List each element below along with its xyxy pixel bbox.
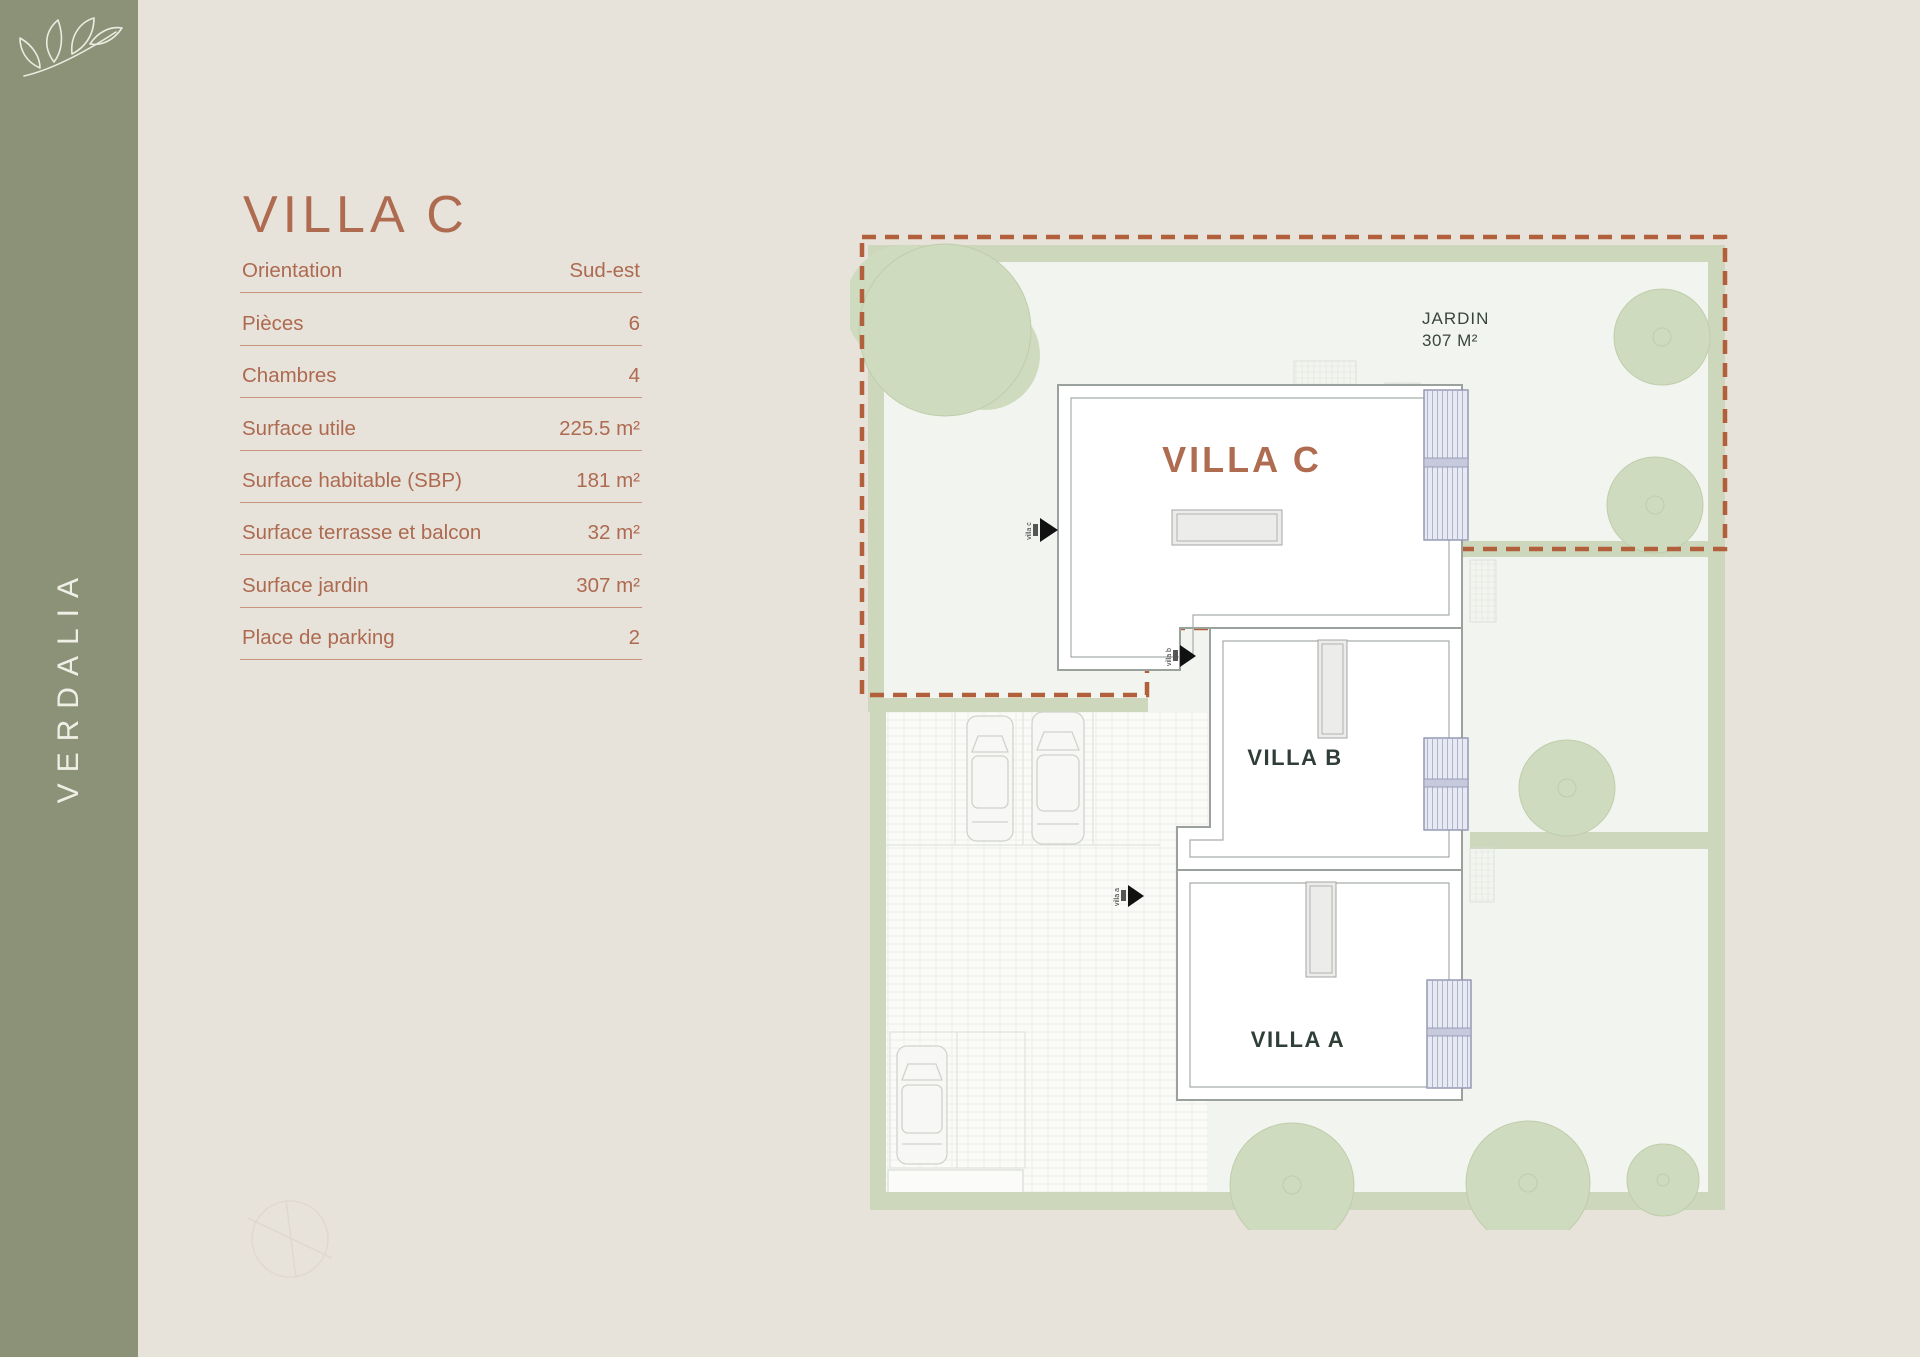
tree [1614,289,1710,385]
spec-row: Surface terrasse et balcon32 m² [240,503,642,555]
brand-name-vertical: VERDALIA [0,555,138,815]
car [967,716,1013,841]
jardin-area-label: 307 M² [1422,331,1478,350]
sidebar: VERDALIA [0,0,138,1357]
spec-value: 181 m² [576,469,640,493]
villa-b-east-windows [1424,738,1468,830]
villa-a-east-windows [1427,980,1471,1088]
compass-icon [240,1192,340,1292]
spec-label: Chambres [242,364,337,388]
spec-label: Orientation [242,259,342,283]
villa-c-plan-label: VILLA C [1162,439,1322,480]
spec-row: Surface utile225.5 m² [240,398,642,450]
car [1032,712,1084,844]
villa-a-building [1177,870,1471,1100]
car [897,1046,947,1164]
spec-value: 6 [629,312,640,336]
spec-label: Surface terrasse et balcon [242,521,481,545]
spec-row: OrientationSud-est [240,241,642,293]
site-plan: villa c villa b villa a JARDIN 307 M² VI… [850,225,1740,1230]
spec-row: Surface habitable (SBP)181 m² [240,451,642,503]
villa-c-skylight [1172,510,1282,545]
leaf-branch-icon [10,8,128,92]
spec-value: Sud-est [569,259,640,283]
jardin-label: JARDIN [1422,309,1489,328]
svg-text:villa c: villa c [1026,522,1033,540]
spec-value: 225.5 m² [559,417,640,441]
villa-a-plan-label: VILLA A [1251,1027,1345,1052]
spec-value: 32 m² [588,521,640,545]
tree [1607,457,1703,553]
villa-c-east-windows [1424,390,1468,540]
spec-label: Place de parking [242,626,395,650]
spec-row: Chambres4 [240,346,642,398]
tree [1519,740,1615,836]
spec-label: Pièces [242,312,304,336]
spec-value: 4 [629,364,640,388]
svg-text:villa b: villa b [1166,648,1173,666]
spec-label: Surface utile [242,417,356,441]
spec-row: Surface jardin307 m² [240,555,642,607]
spec-table: OrientationSud-estPièces6Chambres4Surfac… [240,241,642,660]
spec-value: 2 [629,626,640,650]
tree [1627,1144,1699,1216]
page-title: VILLA C [243,185,469,245]
villa-a-skylight [1306,882,1336,977]
villa-b-skylight [1318,640,1347,738]
svg-text:villa a: villa a [1114,888,1121,906]
brand-name: VERDALIA [52,567,86,803]
spec-row: Place de parking2 [240,608,642,660]
spec-label: Surface jardin [242,574,368,598]
spec-label: Surface habitable (SBP) [242,469,462,493]
villa-b-plan-label: VILLA B [1247,745,1342,770]
spec-row: Pièces6 [240,293,642,345]
spec-value: 307 m² [576,574,640,598]
